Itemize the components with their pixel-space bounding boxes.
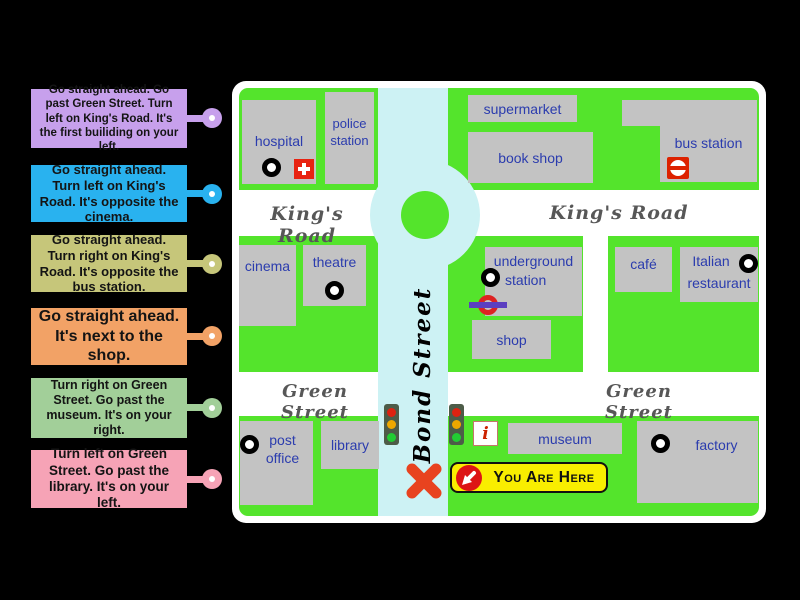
building-hospital: hospital	[242, 100, 316, 184]
building-police-station: police station	[325, 92, 374, 184]
building-shop: shop	[472, 320, 551, 359]
building-book-shop: book shop	[468, 132, 593, 183]
building-museum: museum	[508, 423, 622, 454]
connector-dot-5	[202, 398, 222, 418]
building-bus-station: bus station	[660, 100, 757, 182]
bus-roundel-icon	[667, 157, 689, 179]
street-label-green-street-west: Green Street	[255, 381, 375, 423]
you-are-here-badge: You Are Here	[450, 462, 608, 493]
answer-target-underground-station[interactable]	[481, 268, 500, 287]
building-italian-restaurant: Italian restaurant	[680, 247, 758, 302]
info-icon-glyph: i	[482, 424, 488, 444]
place-label-museum: museum	[538, 431, 592, 447]
place-label-bus-station: bus station	[660, 134, 757, 152]
connector-dot-6	[202, 469, 222, 489]
place-label-supermarket: supermarket	[484, 101, 562, 117]
place-label-post-office: post office	[252, 431, 313, 467]
answer-target-theatre[interactable]	[325, 281, 344, 300]
street-label-kings-road-east: King's Road	[549, 202, 689, 224]
place-label-italian: Italian	[680, 252, 742, 270]
connector-dot-1	[202, 108, 222, 128]
instruction-label-2[interactable]: Go straight ahead. Turn left on King's R…	[31, 165, 187, 222]
building-factory: factory	[637, 421, 758, 503]
activity-stage: Go straight ahead. Go past Green Street.…	[0, 0, 800, 600]
instruction-label-5[interactable]: Turn right on Green Street. Go past the …	[31, 378, 187, 438]
place-label-underground-station: station	[505, 271, 546, 289]
traffic-light-icon-right	[449, 404, 464, 445]
x-mark-icon	[402, 459, 446, 503]
roundabout-island	[401, 191, 449, 239]
connector-line-4	[186, 333, 203, 340]
instruction-label-6[interactable]: Turn left on Green Street. Go past the l…	[31, 450, 187, 508]
building-cinema: cinema	[239, 245, 296, 326]
instruction-label-1[interactable]: Go straight ahead. Go past Green Street.…	[31, 89, 187, 148]
instruction-label-4[interactable]: Go straight ahead. It's next to the shop…	[31, 308, 187, 365]
place-label-cinema: cinema	[239, 257, 296, 275]
map-canvas: King's Road King's Road Green Street Gre…	[239, 88, 759, 516]
connector-line-5	[186, 404, 203, 411]
street-label-green-street-east: Green Street	[569, 381, 709, 423]
building-library: library	[321, 421, 379, 469]
building-cafe: café	[615, 247, 672, 292]
place-label-book-shop: book shop	[498, 150, 563, 166]
building-post-office: post office	[240, 421, 313, 505]
place-label-library: library	[331, 437, 369, 453]
building-underground-station: underground station	[485, 247, 582, 316]
underground-roundel-icon	[469, 294, 507, 316]
connector-dot-2	[202, 184, 222, 204]
info-icon: i	[473, 421, 498, 446]
street-label-bond-street: Bond Street	[409, 275, 439, 475]
connector-line-3	[186, 260, 203, 267]
place-label-restaurant: restaurant	[680, 274, 758, 292]
you-are-here-text: You Are Here	[486, 464, 602, 491]
traffic-light-icon-left	[384, 404, 399, 445]
map: King's Road King's Road Green Street Gre…	[232, 81, 766, 523]
connector-line-2	[186, 190, 203, 197]
instruction-label-3[interactable]: Go straight ahead. Turn right on King's …	[31, 235, 187, 292]
connector-line-1	[186, 115, 203, 122]
hospital-cross-icon	[294, 159, 314, 179]
answer-target-italian-restaurant[interactable]	[739, 254, 758, 273]
place-label-shop: shop	[496, 332, 526, 348]
place-label-cafe: café	[615, 255, 672, 273]
answer-target-factory[interactable]	[651, 434, 670, 453]
place-label-factory: factory	[675, 436, 758, 454]
connector-line-6	[186, 476, 203, 483]
building-supermarket: supermarket	[468, 95, 577, 122]
street-label-kings-road-west: King's Road	[247, 203, 367, 247]
connector-dot-4	[202, 326, 222, 346]
building-theatre: theatre	[303, 245, 366, 306]
answer-target-hospital[interactable]	[262, 158, 281, 177]
you-are-here-arrow-icon	[456, 465, 482, 491]
place-label-police-station: police station	[325, 116, 374, 150]
place-label-theatre: theatre	[303, 253, 366, 271]
place-label-underground: underground	[485, 252, 582, 270]
place-label-hospital: hospital	[242, 132, 316, 150]
connector-dot-3	[202, 254, 222, 274]
